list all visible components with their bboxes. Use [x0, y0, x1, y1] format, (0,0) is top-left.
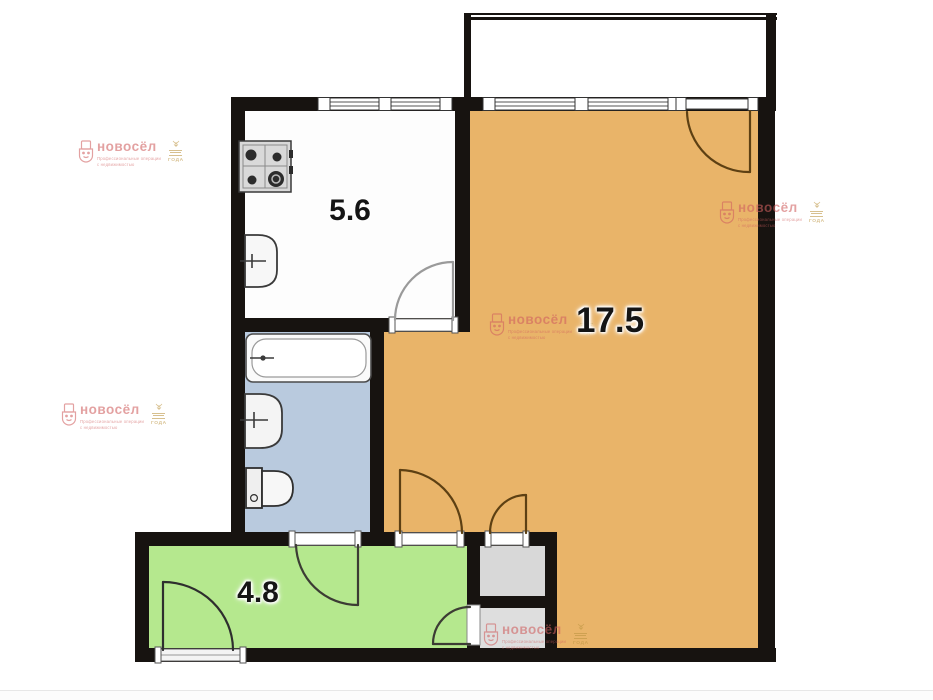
watermark-bottom-left: новосёл Профессиональные операции с недв…	[61, 402, 167, 431]
closet-top-floor	[473, 539, 551, 602]
hallway-floor	[142, 539, 473, 655]
badge-laurel-icon	[154, 403, 164, 411]
watermark-tagline-2: с недвижимостью	[502, 645, 540, 650]
badge-laurel-icon	[576, 623, 586, 631]
watermark-tagline-2: с недвижимостью	[80, 425, 118, 430]
sink-icon	[240, 235, 277, 287]
watermark-brand: новосёл	[502, 622, 566, 639]
watermark-brand: новосёл	[97, 139, 161, 156]
watermark-badge-year: ГОДА	[809, 219, 825, 224]
watermark-tagline-1: Профессиональные операции	[97, 156, 161, 161]
novosel-logo-icon	[78, 140, 94, 163]
novosel-logo-icon	[61, 403, 77, 426]
watermark-top-left: новосёл Профессиональные операции с недв…	[78, 139, 184, 168]
watermark-badge-year: ГОДА	[573, 641, 589, 646]
watermark-tagline-2: с недвижимостью	[97, 162, 135, 167]
bathtub-icon	[246, 334, 371, 382]
living-room-window	[483, 98, 680, 111]
watermark-tagline-2: с недвижимостью	[508, 335, 546, 340]
watermark-tagline-1: Профессиональные операции	[80, 419, 144, 424]
toilet-icon	[246, 468, 293, 508]
floorplan-drawing	[0, 0, 933, 700]
watermark-right: новосёл Профессиональные операции с недв…	[719, 200, 825, 229]
watermark-badge-year: ГОДА	[168, 158, 184, 163]
watermark-tagline-1: Профессиональные операции	[738, 217, 802, 222]
kitchen-area-label: 5.6	[318, 194, 382, 228]
floorplan-image: 5.6 17.5 4.8 новосёл Профессиональные оп…	[0, 0, 933, 700]
badge-laurel-icon	[812, 201, 822, 209]
kitchen-window	[318, 98, 452, 111]
novosel-logo-icon	[489, 313, 505, 336]
page-footer-area	[0, 691, 933, 700]
hallway-area-label: 4.8	[226, 576, 290, 610]
stove-icon	[239, 141, 293, 192]
watermark-bottom: новосёл Профессиональные операции с недв…	[483, 622, 589, 651]
badge-laurel-icon	[171, 140, 181, 148]
watermark-tagline-2: с недвижимостью	[738, 223, 776, 228]
novosel-logo-icon	[483, 623, 499, 646]
novosel-logo-icon	[719, 201, 735, 224]
watermark-tagline-1: Профессиональные операции	[502, 639, 566, 644]
watermark-brand: новосёл	[80, 402, 144, 419]
washbasin-icon	[240, 394, 282, 448]
living-room-area-label: 17.5	[558, 301, 662, 341]
watermark-brand: новосёл	[738, 200, 802, 217]
watermark-badge-year: ГОДА	[151, 421, 167, 426]
